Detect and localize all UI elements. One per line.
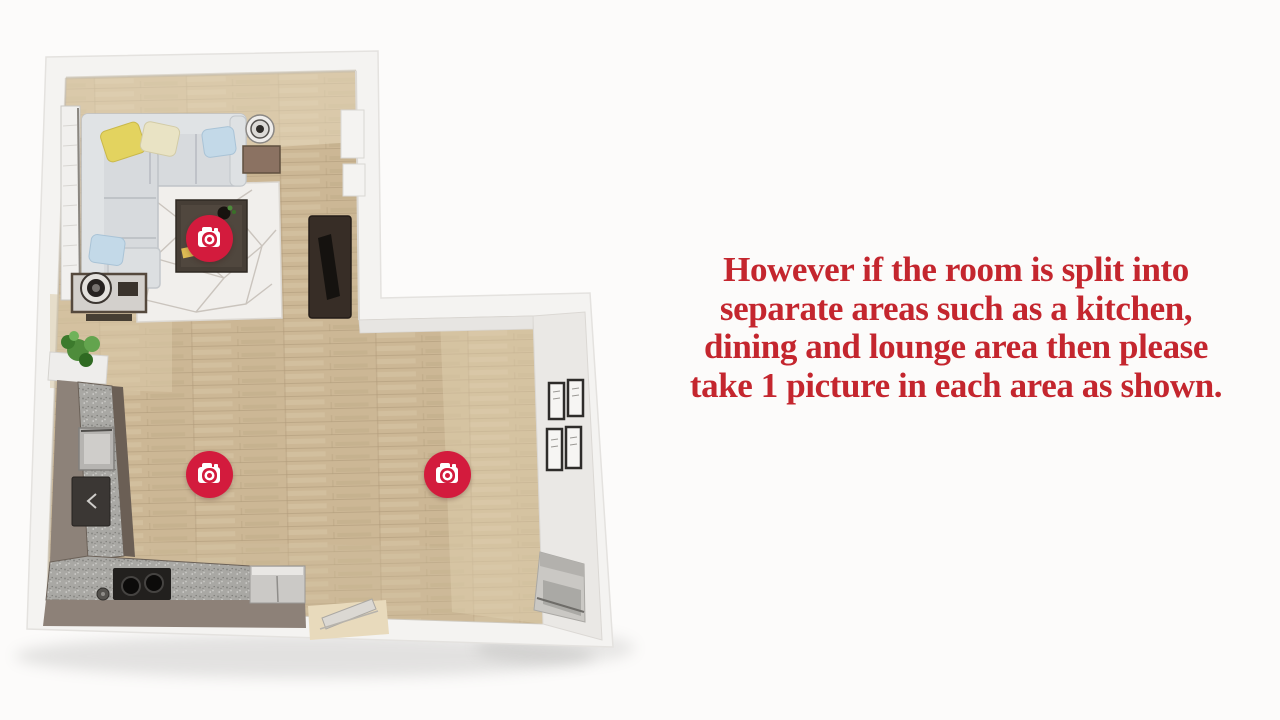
cooktop <box>113 568 171 600</box>
camera-icon <box>198 467 220 483</box>
page: However if the room is split into separa… <box>0 0 1280 720</box>
corner-unit <box>534 552 585 622</box>
camera-body <box>198 231 220 247</box>
camera-marker-dining[interactable] <box>424 451 471 498</box>
camera-lens <box>445 473 450 478</box>
camera-icon <box>436 467 458 483</box>
instruction-line: dining and lounge area then please <box>648 328 1264 367</box>
instruction-text: However if the room is split into separa… <box>648 251 1264 405</box>
camera-body <box>198 467 220 483</box>
sink-unit <box>250 566 305 603</box>
instruction-line: separate areas such as a kitchen, <box>648 290 1264 329</box>
camera-lens <box>207 237 212 242</box>
tv-console <box>309 216 351 318</box>
floorplan-svg <box>0 0 660 720</box>
camera-body <box>436 467 458 483</box>
window-sills <box>341 110 365 196</box>
floorplan-illustration <box>0 0 660 720</box>
radiator-panel <box>61 106 80 300</box>
door <box>308 599 389 640</box>
camera-marker-lounge[interactable] <box>186 215 233 262</box>
camera-marker-kitchen[interactable] <box>186 451 233 498</box>
camera-icon <box>198 231 220 247</box>
instruction-line: take 1 picture in each area as shown. <box>648 367 1264 406</box>
camera-lens <box>207 473 212 478</box>
instruction-line: However if the room is split into <box>648 251 1264 290</box>
